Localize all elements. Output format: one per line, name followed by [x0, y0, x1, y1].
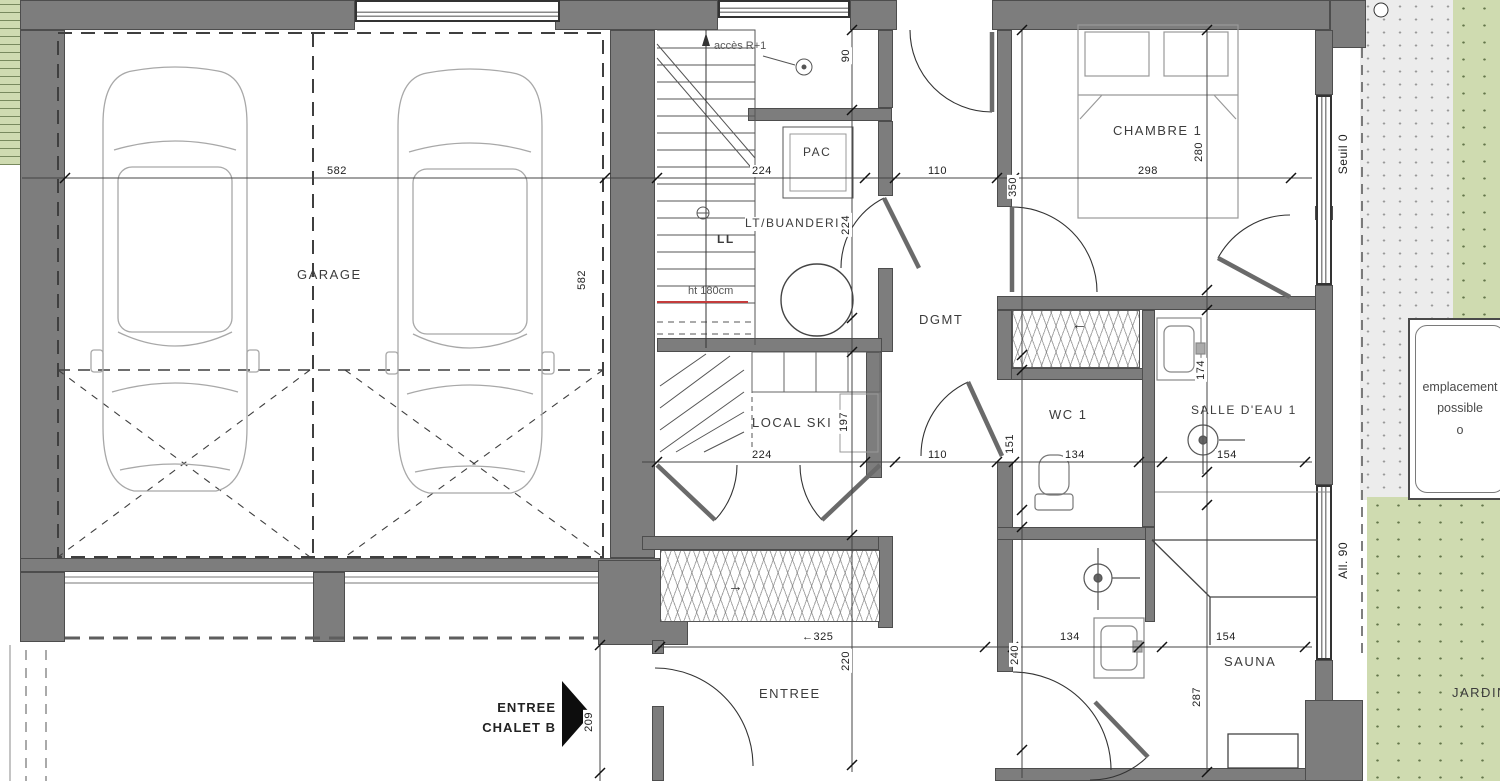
stair-window [718, 0, 850, 18]
acces-note: accès R+1 [714, 40, 766, 52]
dim-chambre-height: 280 [1193, 140, 1205, 164]
wall [20, 0, 355, 30]
bed-icon [1078, 25, 1238, 218]
room-label-local-ski: LOCAL SKI [752, 416, 832, 431]
dim-mid-134: 134 [1063, 449, 1087, 461]
wall [20, 572, 65, 642]
emplacement-line3: o [1416, 420, 1500, 441]
bath2-sink-icon [1094, 618, 1144, 678]
wall [642, 536, 892, 550]
emplacement-line1: emplacement [1416, 377, 1500, 398]
room-label-jardin: JARDIN [1452, 686, 1500, 701]
dim-bath-240: 240 [1009, 643, 1021, 667]
entrance-callout-line2: CHALET B [448, 718, 556, 738]
car-icon [91, 67, 259, 491]
emplacement-box: emplacement possible o [1408, 318, 1500, 500]
wall [997, 527, 1155, 540]
wall [850, 0, 897, 30]
wall [878, 536, 893, 628]
entree-closet [660, 550, 880, 622]
seuil-note: Seuil 0 [1336, 132, 1350, 176]
dim-top-110: 110 [926, 165, 949, 177]
sauna-window [1316, 485, 1332, 660]
wall [20, 30, 65, 560]
dim-mid-224: 224 [750, 449, 774, 461]
dim-sauna-154: 154 [1214, 631, 1238, 643]
dim-entree-220: 220 [840, 649, 852, 673]
wall [866, 352, 882, 478]
washer-label: LL [717, 233, 735, 247]
wall [652, 640, 664, 654]
dim-garage-height: 582 [576, 268, 588, 292]
water-heater-icon [781, 264, 853, 336]
pac-label: PAC [803, 146, 831, 160]
dim-garage-width: 582 [325, 165, 349, 177]
height-note: ht 180cm [688, 285, 733, 297]
floor-plan: GARAGE CHAMBRE 1 DGMT WC 1 SALLE D'EAU 1… [0, 0, 1500, 781]
ski-shelves [752, 352, 880, 452]
wall [555, 0, 718, 30]
dim-mid-154: 154 [1215, 449, 1239, 461]
room-label-garage: GARAGE [297, 268, 362, 283]
entrance-callout-line1: ENTREE [448, 698, 556, 718]
dim-wc-151: 151 [1004, 432, 1016, 456]
dim-corridor-90: 90 [840, 47, 852, 64]
emplacement-box-inner: emplacement possible o [1415, 325, 1500, 493]
wall [997, 310, 1012, 380]
wall [1305, 700, 1363, 781]
wall [657, 338, 882, 352]
wall [1145, 527, 1155, 622]
wall [748, 108, 892, 121]
wall [1005, 368, 1145, 380]
car-icon [386, 69, 554, 493]
wall [1315, 285, 1333, 485]
wall [997, 296, 1330, 310]
wall [1330, 0, 1366, 48]
dim-buanderie-224: 224 [840, 213, 852, 237]
dim-top-224: 224 [750, 165, 774, 177]
wall [992, 0, 1330, 30]
allee-note: All. 90 [1336, 540, 1350, 581]
closet-arrow-icon: ← [1072, 316, 1087, 333]
wc-toilet-icon [1035, 455, 1073, 510]
wall [995, 768, 1325, 781]
dim-chambre-width: 298 [1136, 165, 1160, 177]
closet-arrow-icon: → [728, 578, 743, 595]
dim-sauna-287: 287 [1191, 685, 1203, 709]
dim-sde-174: 174 [1195, 358, 1207, 382]
wall [610, 30, 655, 558]
dim-mid-110: 110 [926, 449, 949, 461]
dim-porch-209: 209 [583, 710, 595, 734]
wall [20, 558, 660, 572]
room-label-buanderie: LT/BUANDERIE [745, 217, 849, 231]
garage-doors [10, 577, 598, 781]
bath2-shower-icon [1084, 548, 1140, 610]
garage-parking-dashes [58, 33, 603, 557]
wall [1315, 30, 1333, 95]
wall [313, 572, 345, 642]
room-label-salle-deau: SALLE D'EAU 1 [1191, 404, 1297, 418]
dim-entree-325: ←325 [800, 631, 835, 643]
chambre-window [1316, 95, 1332, 285]
garden-left-strip [0, 0, 22, 165]
room-label-sauna: SAUNA [1224, 655, 1276, 670]
wall [878, 121, 893, 196]
emplacement-line2: possible [1416, 398, 1500, 419]
wall [652, 706, 664, 781]
room-label-chambre: CHAMBRE 1 [1113, 124, 1202, 139]
garage-window [355, 0, 560, 22]
entrance-callout: ENTREE CHALET B [448, 698, 556, 737]
pac-unit [783, 127, 853, 198]
dim-ski-197: 197 [838, 410, 850, 434]
room-label-entree: ENTREE [759, 687, 821, 702]
garden-right-bottom [1367, 497, 1500, 781]
room-label-wc: WC 1 [1049, 408, 1088, 423]
wall [997, 462, 1013, 672]
room-label-dgmt: DGMT [919, 313, 963, 328]
wall [1142, 310, 1155, 527]
wall [878, 30, 893, 108]
sauna-outline [1152, 492, 1330, 768]
dim-bath-134: 134 [1058, 631, 1082, 643]
dim-left-350: 350 [1007, 175, 1019, 199]
